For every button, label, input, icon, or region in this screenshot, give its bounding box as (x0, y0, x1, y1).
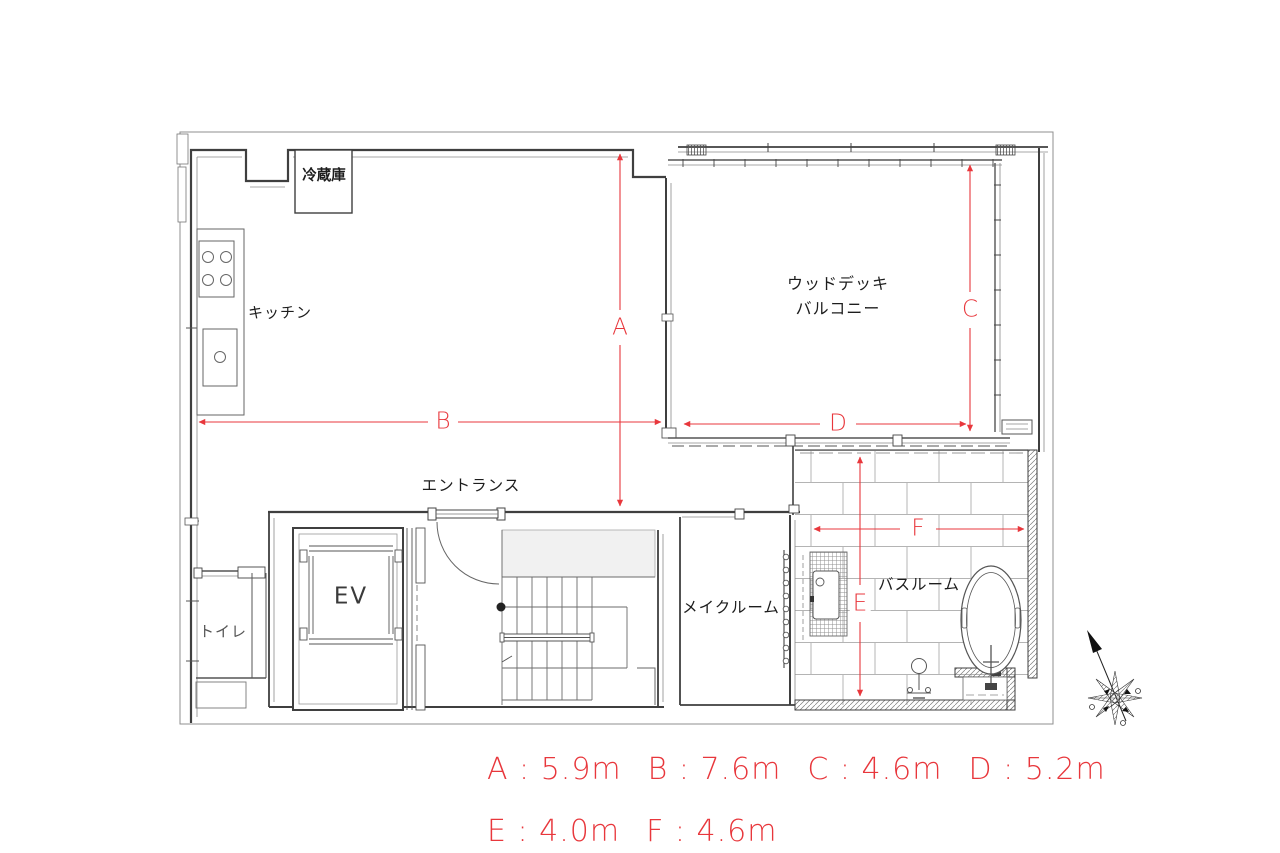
dimension-legend-line1: A : 5.9m B : 7.6m C : 4.6m D : 5.2m (487, 752, 1106, 787)
room-label-balcony-line2: バルコニー (796, 301, 881, 317)
dimension-marker-f: F (908, 518, 927, 541)
dimension-item: D : 5.2m (968, 752, 1105, 787)
bath-sink-icon (810, 552, 847, 636)
room-label-balcony-line1: ウッドデッキ (787, 276, 889, 292)
dimension-item: B : 7.6m (648, 752, 782, 787)
dimension-marker-a: A (609, 317, 631, 340)
stair-landing (502, 530, 655, 577)
dimension-item: A : 5.9m (487, 752, 622, 787)
dimension-marker-e: E (850, 593, 871, 616)
room-label-elevator: EV (334, 586, 368, 609)
balcony-unit-icon (1002, 420, 1032, 434)
walls (185, 150, 800, 723)
floor-plan-canvas: 冷蔵庫 キッチン ウッドデッキ バルコニー エントランス EV トイレ メイクル… (0, 0, 1280, 853)
dimension-item: E : 4.0m (487, 814, 620, 849)
room-label-kitchen: キッチン (248, 306, 312, 321)
floor-plan-drawing (0, 0, 1280, 853)
dimension-marker-c: C (959, 299, 981, 322)
stair-handrail (500, 633, 594, 642)
room-label-makeup-room: メイクルーム (682, 600, 780, 616)
room-label-bathroom: バスルーム (878, 577, 960, 593)
dimension-legend-line2: E : 4.0m F : 4.6m (487, 814, 777, 849)
dimension-item: F : 4.6m (646, 814, 777, 849)
balcony-railing (662, 143, 1048, 452)
room-label-entrance: エントランス (422, 478, 521, 494)
dimension-item: C : 4.6m (807, 752, 942, 787)
room-label-toilet: トイレ (199, 625, 247, 640)
dimension-marker-d: D (826, 413, 850, 436)
room-label-refrigerator: 冷蔵庫 (302, 169, 346, 184)
entrance-door (428, 508, 505, 584)
elevator-shaft (293, 528, 425, 710)
kitchen-unit (197, 229, 244, 415)
north-arrow-compass-icon (1087, 630, 1142, 726)
dimension-marker-b: B (432, 411, 453, 434)
